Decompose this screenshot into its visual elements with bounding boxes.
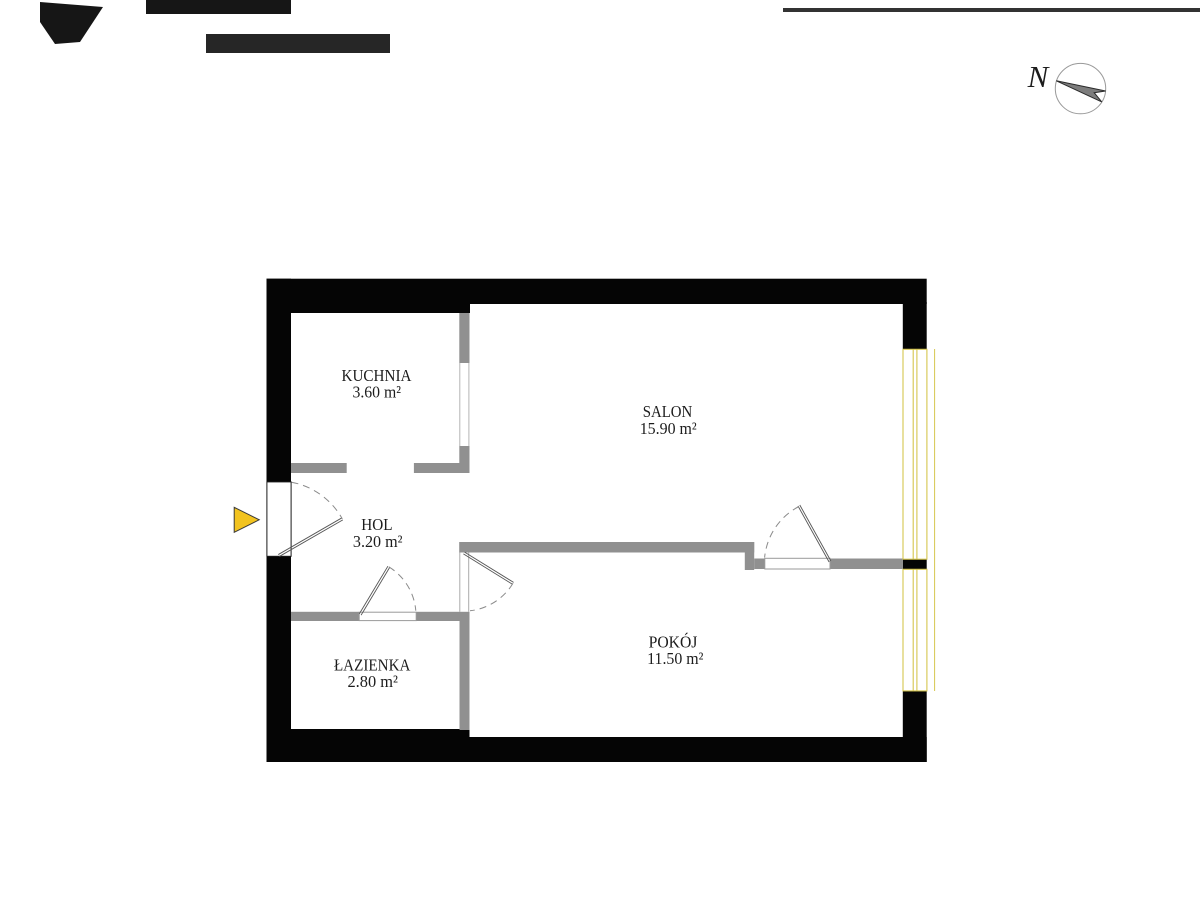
svg-text:15.90 m²: 15.90 m² [640,419,697,438]
svg-text:2.80 m²: 2.80 m² [347,672,398,691]
svg-text:SALON: SALON [643,402,693,421]
svg-text:3.20 m²: 3.20 m² [353,532,403,551]
svg-text:11.50 m²: 11.50 m² [647,649,703,668]
svg-text:3.60 m²: 3.60 m² [352,383,401,402]
svg-text:N: N [1027,59,1051,94]
